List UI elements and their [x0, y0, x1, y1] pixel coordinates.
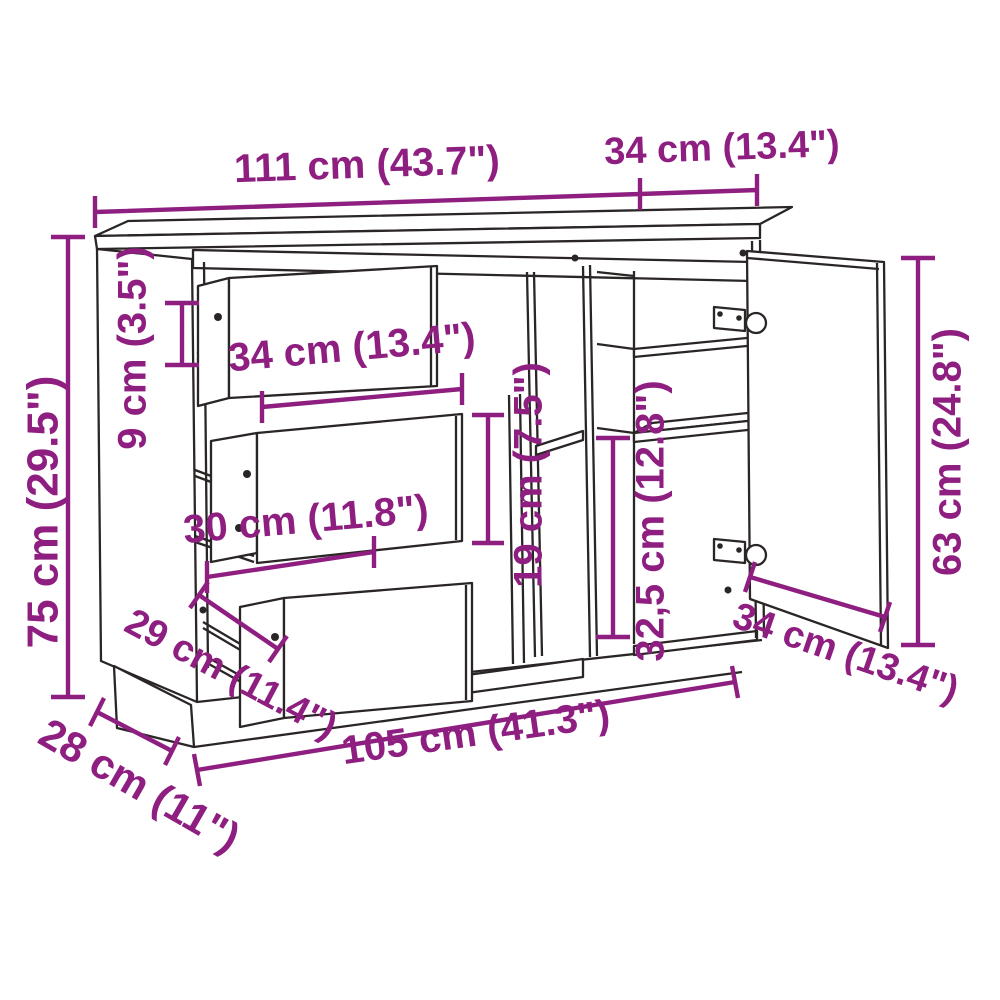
middle-compartment-right-wall	[583, 265, 597, 657]
dim-shelf-gap-height: 19 cm (7.5")	[472, 362, 551, 588]
dim-compartment-height-label: 32,5 cm (12.8")	[629, 380, 673, 661]
cam-hole	[740, 250, 747, 257]
dim-overall-height-label: 75 cm (29.5")	[19, 376, 68, 649]
dim-top-depth-label: 34 cm (13.4")	[603, 123, 840, 173]
dim-door-height-label: 63 cm (24.8")	[926, 328, 970, 576]
hinge-screw	[717, 311, 723, 317]
dim-line	[472, 415, 504, 543]
hinge-cup	[746, 545, 766, 565]
screw-hole	[214, 313, 222, 321]
cam-hole	[572, 255, 579, 262]
right-shelf-upper	[634, 337, 757, 357]
screw-hole	[243, 470, 251, 478]
dim-overall-height: 75 cm (29.5")	[19, 237, 85, 697]
sideboard-drawing-canvas: 111 cm (43.7") 34 cm (13.4") 75 cm (29.5…	[0, 0, 1000, 1000]
screw-hole	[271, 633, 279, 641]
dim-overall-width-label: 111 cm (43.7")	[233, 138, 500, 191]
door-face	[747, 251, 888, 648]
dimension-diagram: 111 cm (43.7") 34 cm (13.4") 75 cm (29.5…	[0, 0, 1000, 1000]
dim-top-gap-height-label: 9 cm (3.5")	[111, 246, 155, 450]
middle-compartment-bottom-rail	[460, 659, 583, 694]
dim-door-height: 63 cm (24.8")	[901, 258, 970, 645]
hinge-cup	[746, 313, 766, 333]
dim-compartment-height: 32,5 cm (12.8")	[596, 380, 673, 661]
hinge-screw	[736, 315, 742, 321]
cam-hole	[725, 587, 732, 594]
drawer-top-side	[198, 278, 229, 406]
dim-line	[596, 438, 630, 637]
hinge-screw	[717, 543, 723, 549]
dim-shelf-gap-height-label: 19 cm (7.5")	[507, 362, 551, 588]
dim-line	[640, 174, 757, 206]
hinge-screw	[736, 547, 742, 553]
door-right	[714, 251, 888, 648]
cam-hole	[200, 607, 207, 614]
